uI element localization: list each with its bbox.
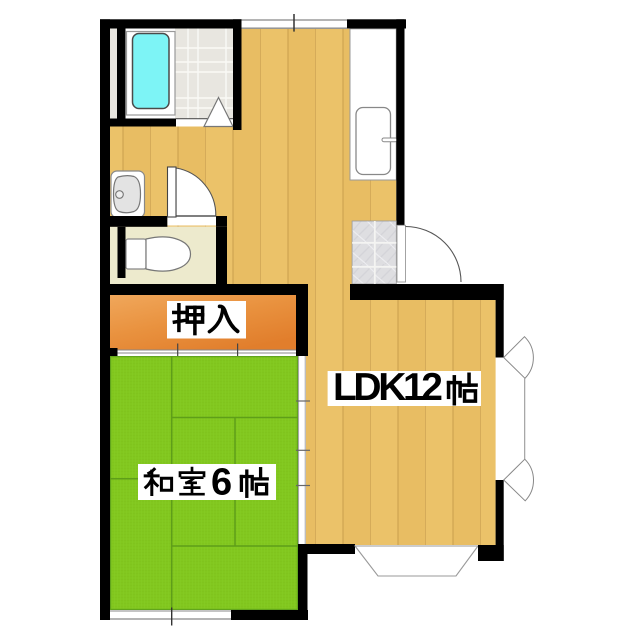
svg-text:6: 6 xyxy=(211,462,232,504)
svg-text:LDK12: LDK12 xyxy=(333,366,443,409)
